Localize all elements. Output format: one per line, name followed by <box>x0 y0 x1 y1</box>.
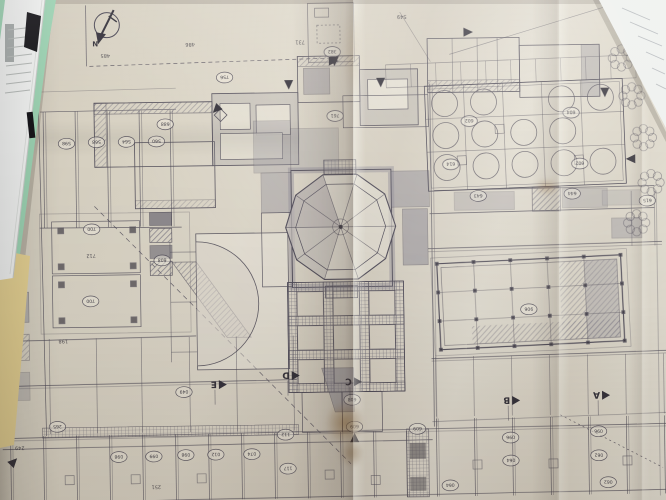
yellow-folder <box>0 250 30 448</box>
desk-items-layer <box>0 0 666 500</box>
photo-of-architectural-plan: N <box>0 0 666 500</box>
